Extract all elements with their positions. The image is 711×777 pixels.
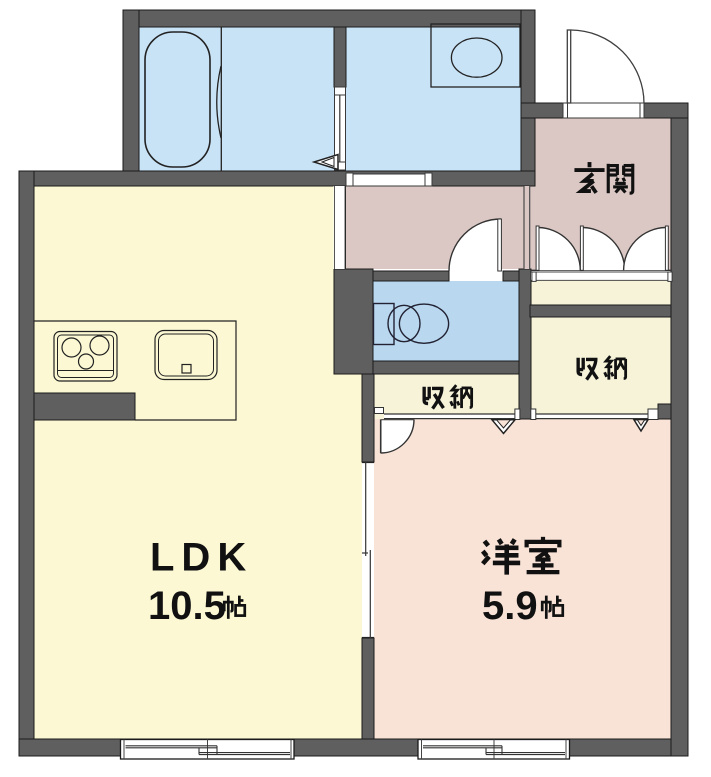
svg-text:5.9: 5.9 — [482, 584, 538, 628]
svg-text:10.5: 10.5 — [148, 584, 226, 628]
svg-text:LDK: LDK — [150, 536, 253, 580]
